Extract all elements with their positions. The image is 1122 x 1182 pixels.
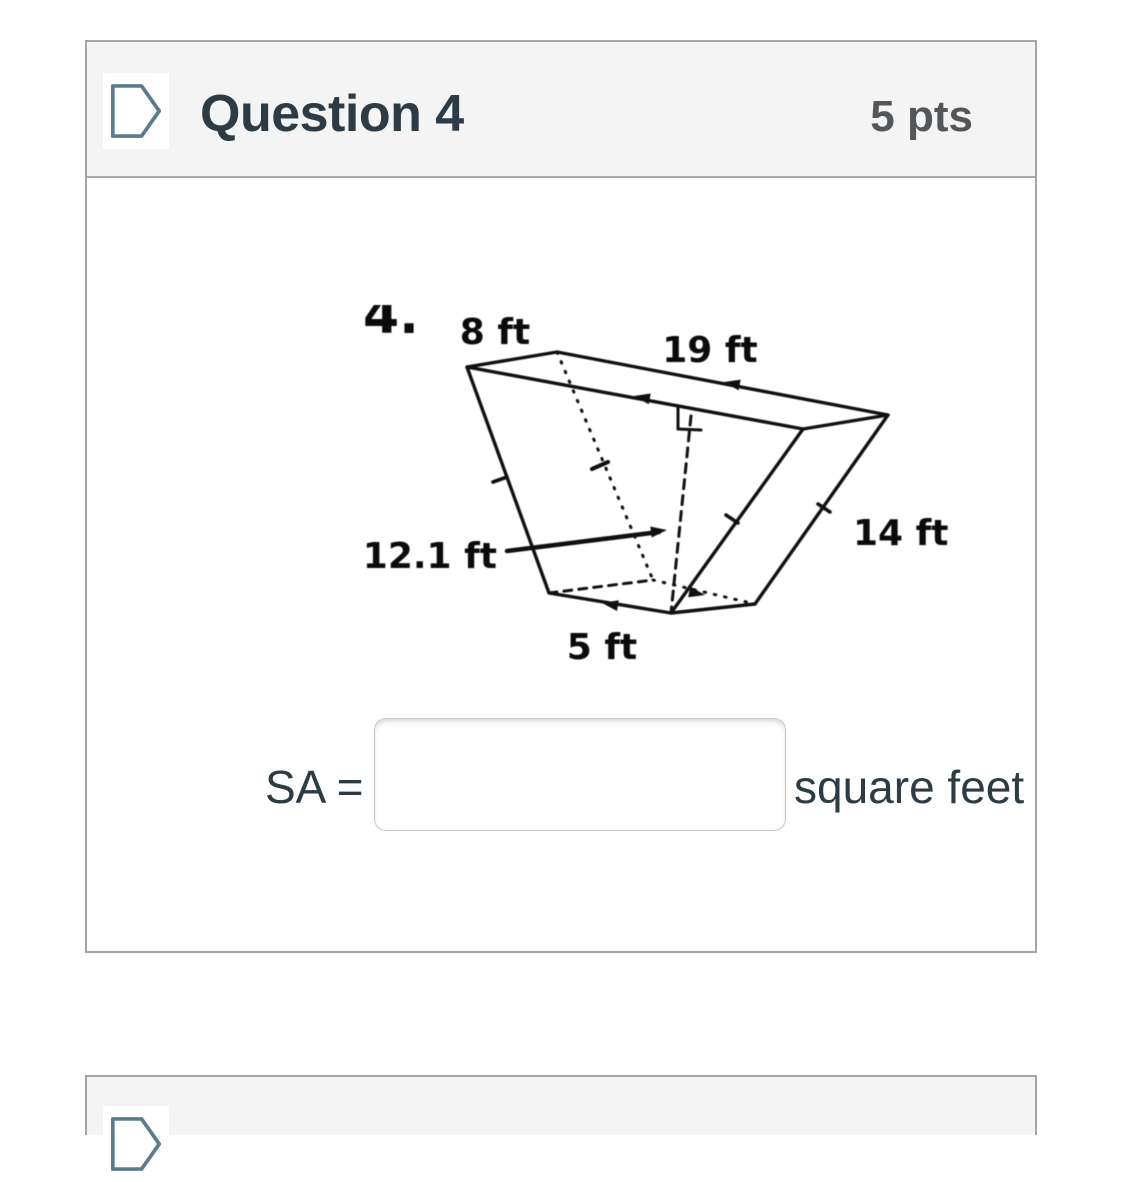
height-dashed-line xyxy=(671,416,691,613)
prism-hidden-edges xyxy=(549,352,755,613)
tick-front-left-edge xyxy=(493,477,507,482)
question-title: Question 4 xyxy=(200,84,464,144)
scan-crop-mask xyxy=(345,278,437,305)
answer-unit-label: square feet xyxy=(794,760,1024,814)
hidden-bottom-right-edge xyxy=(653,580,755,604)
question-marker-icon xyxy=(103,73,169,149)
prism-solid-edges xyxy=(467,352,888,613)
next-question-card-partial xyxy=(85,1075,1037,1135)
arrow-height-pointer xyxy=(650,527,667,538)
prism-front-face xyxy=(467,367,803,613)
pentagon-tag-icon xyxy=(110,1114,162,1174)
question-card: Question 4 5 pts xyxy=(85,40,1037,953)
question-points: 5 pts xyxy=(870,92,973,142)
hidden-bottom-back-edge xyxy=(549,580,653,593)
label-prism-length: 19 ft xyxy=(662,330,758,371)
label-bottom-width: 5 ft xyxy=(567,627,637,668)
answer-prefix-label: SA = xyxy=(265,760,363,814)
arrow-bottom-back-edge xyxy=(688,587,705,598)
tick-front-right-edge xyxy=(726,515,738,523)
label-trapezoid-height: 12.1 ft xyxy=(363,536,497,577)
pentagon-tag-icon xyxy=(110,81,162,141)
prism-figure: 4. 8 ft 19 ft 12.1 ft 14 ft 5 ft xyxy=(342,277,1002,687)
question-header: Question 4 5 pts xyxy=(87,42,1035,178)
next-question-marker-icon xyxy=(103,1106,169,1182)
answer-input[interactable] xyxy=(374,718,786,831)
label-lateral-edge: 14 ft xyxy=(853,513,949,554)
label-top-width: 8 ft xyxy=(460,312,530,353)
